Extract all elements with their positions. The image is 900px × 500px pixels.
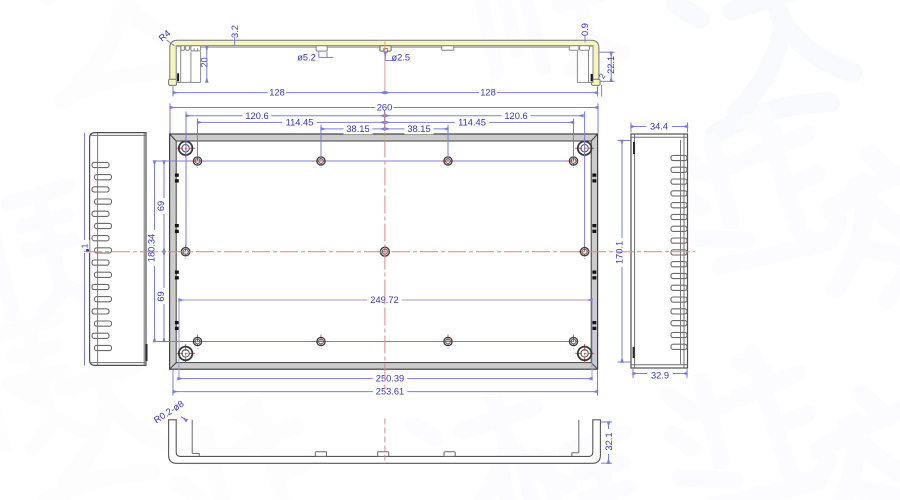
svg-text:120.6: 120.6	[504, 111, 527, 121]
svg-text:32.1: 32.1	[604, 432, 614, 450]
svg-text:22.1: 22.1	[606, 56, 616, 74]
svg-text:114.45: 114.45	[286, 118, 314, 128]
svg-text:20: 20	[200, 57, 210, 67]
svg-text:128: 128	[269, 88, 285, 98]
svg-text:170.1: 170.1	[614, 241, 624, 264]
svg-text:1: 1	[79, 243, 89, 248]
svg-text:114.45: 114.45	[458, 118, 486, 128]
svg-text:180.34: 180.34	[146, 234, 156, 262]
svg-text:128: 128	[480, 88, 496, 98]
svg-text:38.15: 38.15	[407, 124, 430, 134]
svg-text:ø5.2: ø5.2	[297, 52, 316, 62]
svg-text:69: 69	[156, 201, 166, 211]
svg-text:253.61: 253.61	[376, 387, 404, 397]
svg-text:69: 69	[156, 291, 166, 301]
svg-text:ø2.5: ø2.5	[392, 52, 411, 62]
svg-text:3.2: 3.2	[230, 25, 240, 38]
svg-text:34.4: 34.4	[650, 122, 668, 132]
svg-text:0.9: 0.9	[580, 23, 590, 36]
svg-text:250.39: 250.39	[376, 374, 404, 384]
svg-text:38.15: 38.15	[346, 124, 369, 134]
svg-text:32.9: 32.9	[651, 371, 669, 381]
svg-text:120.6: 120.6	[245, 111, 268, 121]
